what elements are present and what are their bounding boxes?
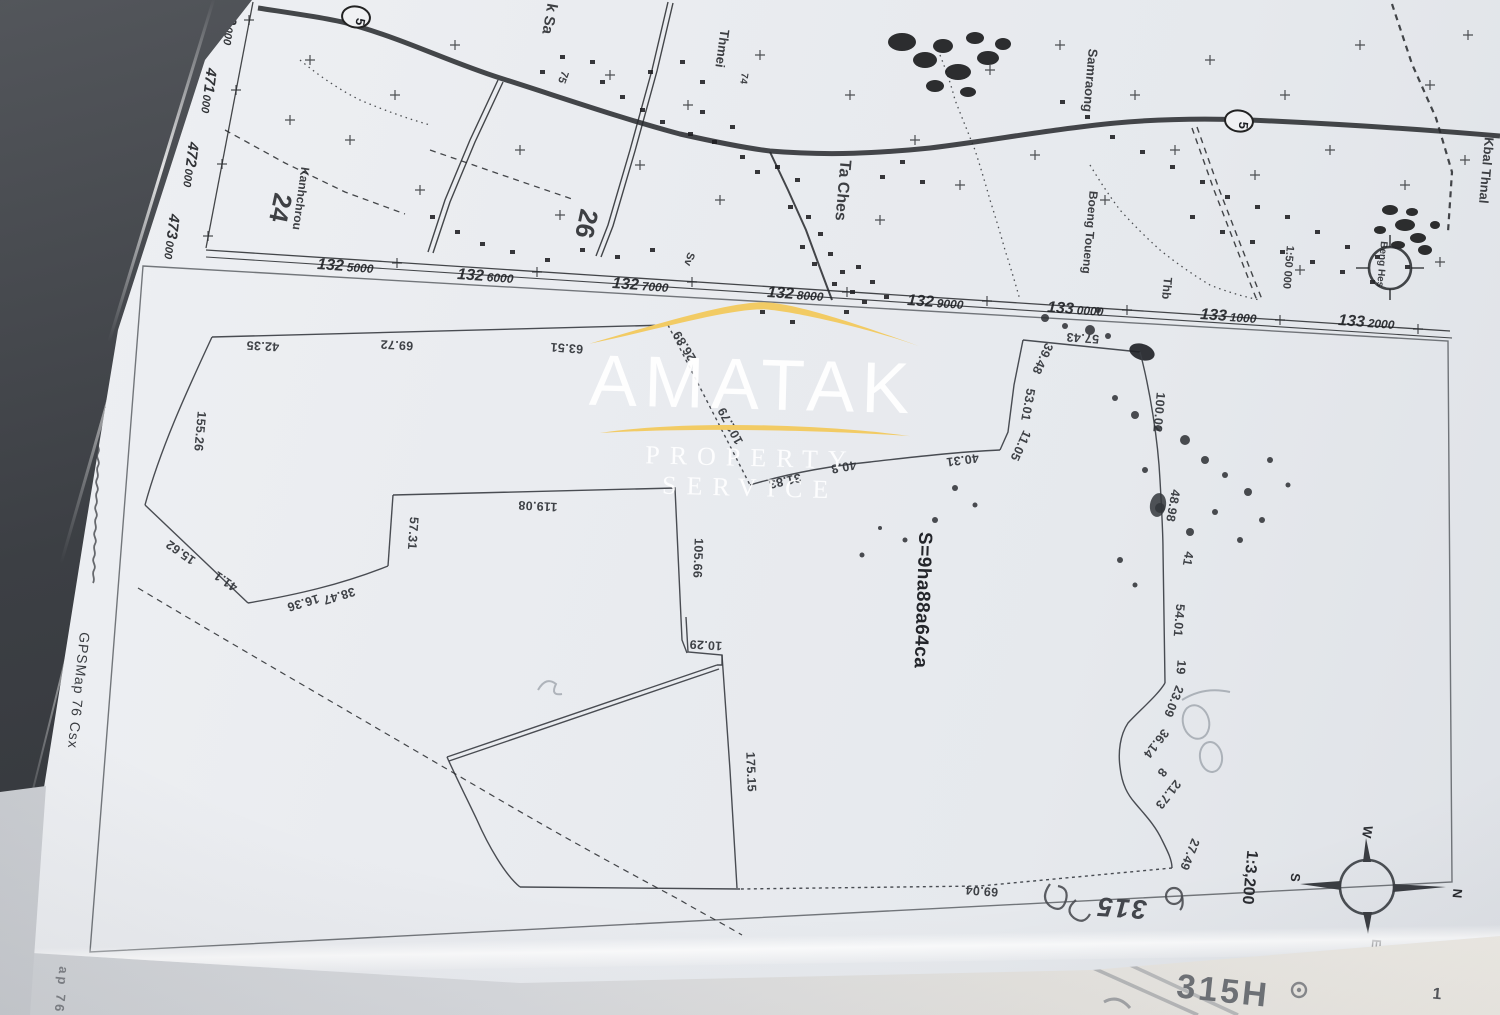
measurement-label: 175.15 xyxy=(743,752,758,793)
pentagon-right-edge xyxy=(722,655,737,888)
measurement-label: 21.73 xyxy=(1153,777,1184,811)
measurement-label: 69.04 xyxy=(965,883,999,899)
boundary-bottom-left-curve xyxy=(447,757,520,887)
speckle xyxy=(1131,411,1139,419)
measurement-label: 42.35 xyxy=(246,338,279,354)
photo-of-survey-documents: 315H1ap 76 xyxy=(0,0,1500,1015)
compass-direction-label: N xyxy=(1450,888,1466,899)
speckle xyxy=(1237,537,1243,543)
speckle xyxy=(1133,583,1138,588)
underlying-sheet-text: 315H xyxy=(1175,967,1272,1015)
measurement-label: 38.47 xyxy=(321,584,356,607)
compass-spoke xyxy=(1393,884,1446,892)
boundary-bottom-dashed xyxy=(740,868,1172,889)
speckle xyxy=(1212,509,1218,515)
measurement-label: 41 xyxy=(1180,550,1196,567)
compass-spoke xyxy=(1363,912,1372,934)
measurement-label: 100.02 xyxy=(1150,392,1167,433)
measurement-label: 10.29 xyxy=(689,637,722,653)
speckle xyxy=(1259,517,1265,523)
underlying-sheet-text: 1 xyxy=(1432,986,1445,1004)
inner-rectangle-left xyxy=(388,495,393,566)
measurement-label: 57.43 xyxy=(1066,330,1100,346)
speckle xyxy=(1062,323,1068,329)
measurement-label: 53.01 xyxy=(1018,387,1037,422)
measurement-label: 40.8 xyxy=(830,458,858,476)
boundary-bottom-solid xyxy=(520,887,740,889)
survey-map-sheet: 55 1325000132600013270001328000132900013… xyxy=(0,0,1500,1015)
speckle xyxy=(932,517,938,523)
parcel-labels: 42.3569.7263.5126.89102.7957.43155.2615.… xyxy=(65,328,1465,948)
measurement-label: 119.08 xyxy=(518,498,558,514)
speckle xyxy=(1112,395,1118,401)
measurement-label: 105.66 xyxy=(690,538,705,579)
boundary-top xyxy=(212,325,668,337)
speckle xyxy=(1244,488,1252,496)
cadastral-parcel-sketch: 42.3569.7263.5126.89102.7957.43155.2615.… xyxy=(0,0,1500,1015)
measurement-label: 63.51 xyxy=(550,340,584,356)
speckle xyxy=(1142,467,1148,473)
speckle xyxy=(903,538,908,543)
measurement-label: 27.49 xyxy=(1177,837,1202,873)
measurement-label: 54.01 xyxy=(1171,603,1188,637)
speckle xyxy=(1117,557,1123,563)
measurement-label: 39.48 xyxy=(1029,341,1056,377)
parcel-area-label: S=9ha88a64ca xyxy=(910,532,936,669)
compass-direction-label: W xyxy=(1359,824,1376,839)
underlying-sheet-text: ap 76 xyxy=(51,966,71,1015)
measurement-label: 69.72 xyxy=(380,337,413,353)
speckle xyxy=(1180,435,1190,445)
speckle xyxy=(860,553,865,558)
measurement-label: 11.05 xyxy=(1007,428,1033,463)
speckle xyxy=(1267,457,1273,463)
speckle xyxy=(952,485,958,491)
measurement-label: 8 xyxy=(1154,765,1170,779)
sketch-scale-label: 1:3,200 xyxy=(1239,850,1261,906)
speckle xyxy=(1095,307,1101,313)
speckle xyxy=(1041,314,1049,322)
speckle xyxy=(1186,528,1194,536)
speckle xyxy=(973,503,978,508)
measurement-label: 155.26 xyxy=(191,411,208,452)
gps-device-note: GPSMap 76 Csx xyxy=(65,631,93,749)
measurement-label: 26.89 xyxy=(670,328,699,363)
speckle xyxy=(1105,333,1111,339)
speckle xyxy=(1201,456,1209,464)
handwritten-annotation: 315 xyxy=(1095,891,1148,924)
measurement-label: 48.98 xyxy=(1163,488,1182,523)
dashed-track-through-parcel xyxy=(138,588,742,935)
speckle xyxy=(878,526,882,530)
diagonal-line xyxy=(447,665,717,757)
measurement-label: 19 xyxy=(1173,660,1188,676)
measurement-label: 15.62 xyxy=(163,537,198,567)
measurement-label: 31.83 xyxy=(767,470,802,491)
speckle xyxy=(1222,472,1228,478)
diagonal-line xyxy=(449,669,719,761)
compass-spoke xyxy=(1363,838,1371,862)
compass-direction-label: S xyxy=(1288,872,1304,882)
measurement-label: 36.14 xyxy=(1141,726,1172,760)
measurement-label: 57.31 xyxy=(405,516,421,550)
speckle xyxy=(1286,483,1291,488)
